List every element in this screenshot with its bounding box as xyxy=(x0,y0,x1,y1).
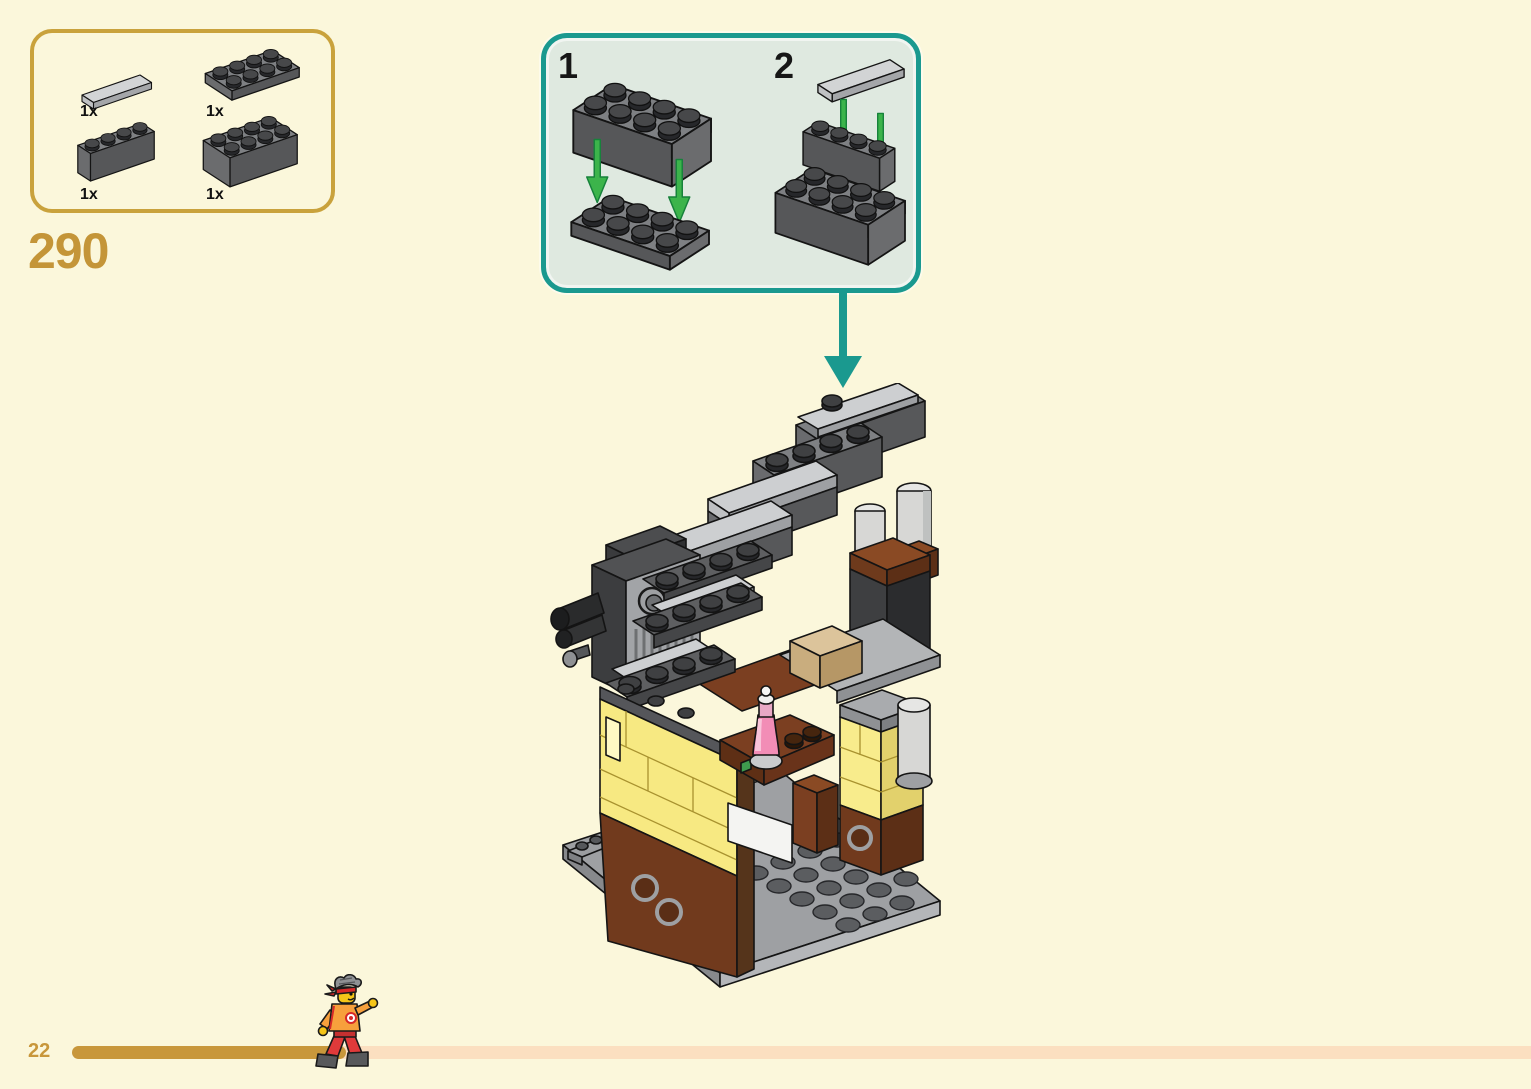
step-number: 290 xyxy=(28,222,108,280)
page-number: 22 xyxy=(28,1040,50,1063)
part-qty: 1x xyxy=(206,186,224,204)
instruction-page: 1x 1x 1x 1x 290 1 2 xyxy=(0,0,1531,1089)
porthole xyxy=(849,827,871,849)
tile-1x4-light-gray-icon xyxy=(72,55,197,110)
window xyxy=(606,717,620,761)
porthole xyxy=(633,876,657,900)
running-minifigure-icon xyxy=(310,974,382,1072)
substep-2-diagram xyxy=(775,60,905,265)
model-illustration xyxy=(548,383,943,988)
callout-pointer-arrow-icon xyxy=(822,290,864,392)
porthole xyxy=(657,900,681,924)
substeps-panel: 1 2 xyxy=(541,33,921,293)
progress-bar xyxy=(72,1046,346,1059)
door-pillar xyxy=(793,775,838,853)
plate-2x4-dark-gray-icon xyxy=(194,41,319,111)
brick-1x4-dark-gray-icon xyxy=(67,120,192,186)
substep-1-diagram xyxy=(571,83,711,269)
brick-2x4-dark-gray-icon xyxy=(192,108,322,188)
parts-panel: 1x 1x 1x 1x xyxy=(30,29,335,213)
substeps-illustration xyxy=(546,38,916,288)
corner-column xyxy=(896,698,932,789)
part-qty: 1x xyxy=(80,103,98,121)
progress-track xyxy=(340,1046,1531,1059)
part-qty: 1x xyxy=(80,186,98,204)
